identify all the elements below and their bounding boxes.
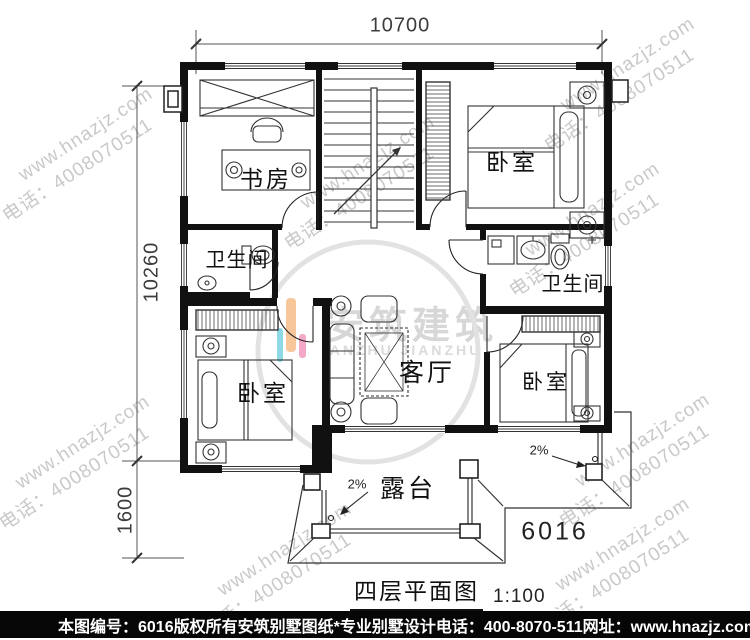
- drawing-title: 四层平面图 1:100: [350, 572, 546, 612]
- room-label-study: 书房: [240, 160, 292, 194]
- room-label-bath-left: 卫生间: [206, 244, 269, 273]
- room-label-bedroom-tr: 卧室: [486, 143, 538, 177]
- dimension-top: 10700: [370, 15, 431, 38]
- footer-bar: 本图编号：6016 版权所有 安筑别墅图纸*专业别墅设计 电话：400-8070…: [0, 611, 750, 638]
- staircase: [324, 79, 414, 228]
- logo-bar-cyan: [277, 328, 283, 362]
- footer-copyright: 版权所有: [174, 613, 238, 637]
- roof-drain-left: [329, 516, 334, 521]
- room-label-terrace: 露台: [380, 469, 436, 505]
- plan-number: 6016: [521, 518, 589, 547]
- logo-bar-orange: [286, 298, 296, 352]
- logo-bar-pink: [299, 334, 306, 358]
- living-furniture: [330, 296, 408, 424]
- room-label-bath-right: 卫生间: [542, 268, 605, 297]
- floor-plan-drawing: [0, 0, 750, 640]
- room-label-bedroom-br: 卧室: [522, 366, 570, 396]
- dimension-left-main: 10260: [141, 242, 164, 303]
- room-label-living: 客厅: [399, 353, 455, 389]
- corner-flues: [164, 80, 628, 112]
- room-label-bedroom-bl: 卧室: [237, 374, 289, 408]
- roof-drain-right: [593, 457, 598, 462]
- footer-website: 网址：www.hnazjz.com: [583, 613, 750, 637]
- slope-label-left: 2%: [348, 477, 367, 492]
- dimension-left-terrace: 1600: [115, 486, 138, 535]
- footer-phone: 电话：400-8070-511: [436, 613, 583, 637]
- drawing-title-text: 四层平面图: [350, 572, 483, 612]
- footer-company: 安筑别墅图纸*专业别墅设计: [238, 613, 436, 637]
- floor-plan-page: www.hnazjz.com电话：4008070511 www.hnazjz.c…: [0, 0, 750, 640]
- bath-right-fixtures: [488, 234, 596, 269]
- slope-label-right: 2%: [530, 443, 549, 458]
- drawing-scale: 1:100: [493, 586, 546, 612]
- footer-item-no: 本图编号：6016: [58, 613, 174, 637]
